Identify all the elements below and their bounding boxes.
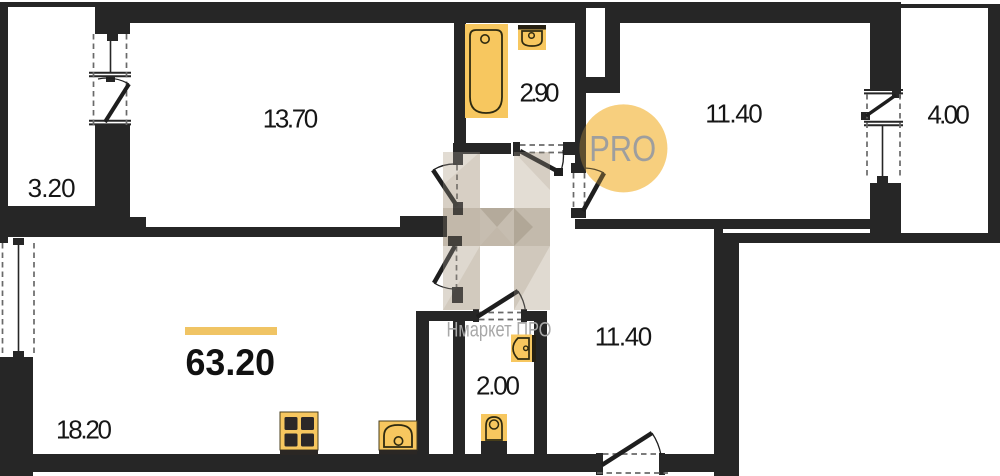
svg-text:63.20: 63.20 [186, 342, 276, 383]
svg-text:4.00: 4.00 [927, 100, 970, 130]
svg-text:11.40: 11.40 [595, 322, 653, 352]
svg-text:PRO: PRO [589, 128, 656, 169]
svg-text:18.20: 18.20 [56, 415, 112, 445]
svg-text:13.70: 13.70 [263, 104, 319, 134]
svg-text:2.00: 2.00 [476, 371, 520, 401]
svg-text:11.40: 11.40 [705, 99, 763, 129]
svg-text:2.90: 2.90 [520, 78, 560, 108]
svg-text:3.20: 3.20 [28, 173, 76, 203]
